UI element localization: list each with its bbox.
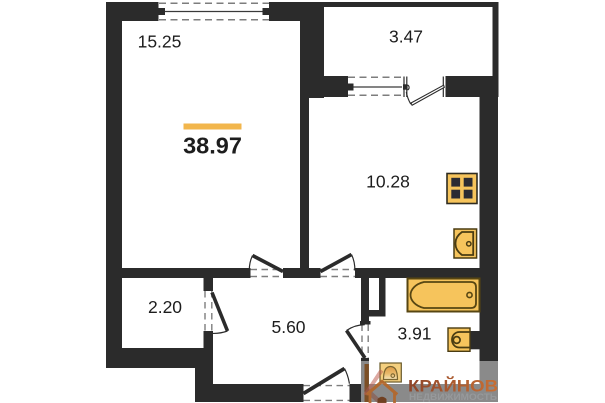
svg-text:3.47: 3.47 — [389, 27, 423, 47]
svg-text:3.91: 3.91 — [397, 324, 431, 344]
svg-text:38.97: 38.97 — [183, 133, 242, 159]
svg-text:НЕДВИЖИМОСТЬ: НЕДВИЖИМОСТЬ — [409, 392, 497, 402]
svg-text:15.25: 15.25 — [138, 32, 182, 52]
svg-text:5.60: 5.60 — [271, 317, 305, 337]
svg-text:2.20: 2.20 — [148, 297, 182, 317]
svg-text:10.28: 10.28 — [366, 172, 410, 192]
